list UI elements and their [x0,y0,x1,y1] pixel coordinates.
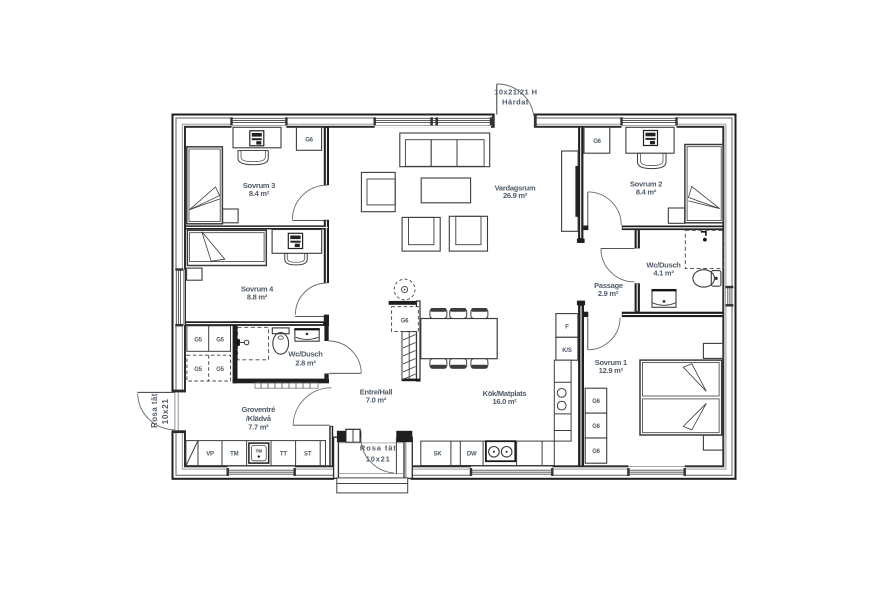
svg-text:8.4 m²: 8.4 m² [249,189,270,198]
svg-text:G5: G5 [216,338,224,344]
svg-text:8.8 m²: 8.8 m² [247,292,268,301]
svg-text:G6: G6 [592,424,600,430]
svg-text:G5: G5 [216,367,224,373]
svg-text:TM: TM [255,449,262,454]
svg-text:16.0 m²: 16.0 m² [492,397,517,406]
svg-text:K/S: K/S [562,348,572,354]
svg-text:7.0 m²: 7.0 m² [366,396,387,405]
svg-text:SK: SK [434,452,443,458]
svg-text:G6: G6 [592,449,600,455]
svg-text:ST: ST [304,452,312,458]
svg-text:G5: G5 [194,367,202,373]
svg-text:Groventré: Groventré [241,405,275,414]
svg-text:G6: G6 [592,399,600,405]
svg-text:Härdat: Härdat [502,98,529,107]
svg-text:G6: G6 [401,319,409,325]
svg-text:G5: G5 [194,338,202,344]
svg-text:26.9 m²: 26.9 m² [503,191,528,200]
svg-text:4.1 m²: 4.1 m² [653,268,674,277]
svg-text:2.9 m²: 2.9 m² [598,289,619,298]
svg-text:TT: TT [280,452,287,458]
svg-text:10x21: 10x21 [366,454,391,463]
svg-text:G6: G6 [593,139,601,145]
svg-text:TM: TM [230,452,238,458]
svg-text:2.8 m²: 2.8 m² [295,359,316,368]
svg-text:8.4 m²: 8.4 m² [636,187,657,196]
svg-text:7.7 m²: 7.7 m² [248,423,269,432]
svg-text:F: F [565,325,569,331]
svg-text:DW: DW [467,452,477,458]
svg-text:12.9 m²: 12.9 m² [599,366,624,375]
svg-text:G6: G6 [305,138,313,144]
svg-text:Rosa tät: Rosa tät [150,393,159,428]
svg-text:Rosa tät: Rosa tät [360,443,397,452]
svg-text:VP: VP [206,452,214,458]
svg-text:10x21: 10x21 [161,399,170,425]
svg-text:10x21/21 H: 10x21/21 H [494,88,537,97]
svg-text:Wc/Dusch: Wc/Dusch [288,350,323,359]
